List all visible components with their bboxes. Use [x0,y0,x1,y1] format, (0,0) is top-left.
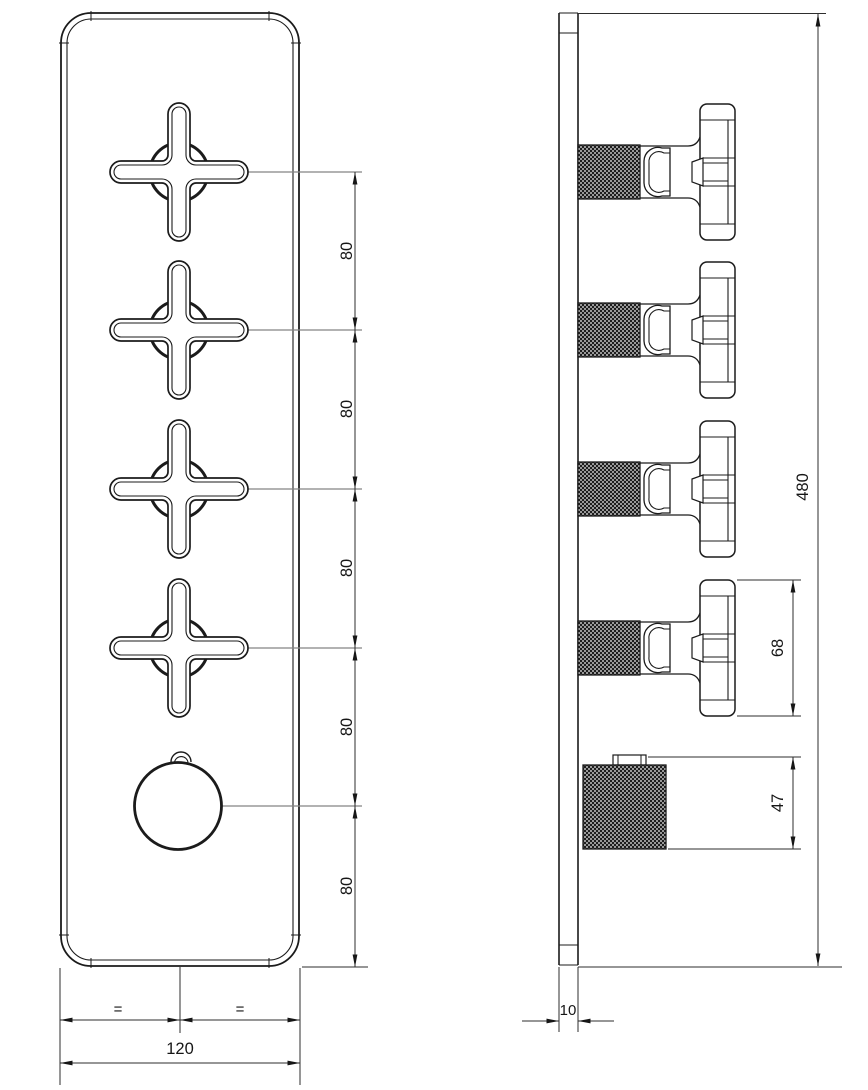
drawing-canvas: 80 80 80 80 80 = = 120 [0,0,868,1090]
equal-label-right: = [236,1001,245,1018]
plate-thickness-dimension [522,967,614,1032]
side-view: 480 68 47 10 [522,13,842,1032]
front-equal-dimension [60,967,300,1085]
dim-label-80-2: 80 [338,400,356,418]
side-handle-3 [578,421,735,557]
front-view: 80 80 80 80 80 = = 120 [59,11,368,1085]
dim-label-80-4: 80 [338,718,356,736]
dim-label-120: 120 [166,1040,194,1058]
side-handle-1 [578,104,735,240]
side-handle-2 [578,262,735,398]
dim-label-80-1: 80 [338,242,356,260]
equal-label-left: = [114,1001,123,1018]
side-knob [583,755,666,849]
thickness-extension-lines [559,967,578,1032]
side-handle-4 [578,580,735,716]
dim-label-47: 47 [769,794,787,812]
side-plate-end-lines [559,13,578,965]
knob-knurled-body [583,765,666,849]
technical-drawing-page: 80 80 80 80 80 = = 120 [0,0,868,1090]
side-plate-edges [559,13,578,965]
front-spacing-dimension-chain [302,172,368,967]
dim-label-68: 68 [769,639,787,657]
side-plate-profile [559,13,578,965]
knob-circle [135,763,222,850]
dim-label-80-3: 80 [338,559,356,577]
dim-label-10: 10 [560,1002,577,1019]
dim-label-80-5: 80 [338,877,356,895]
dim-label-480: 480 [794,473,812,501]
